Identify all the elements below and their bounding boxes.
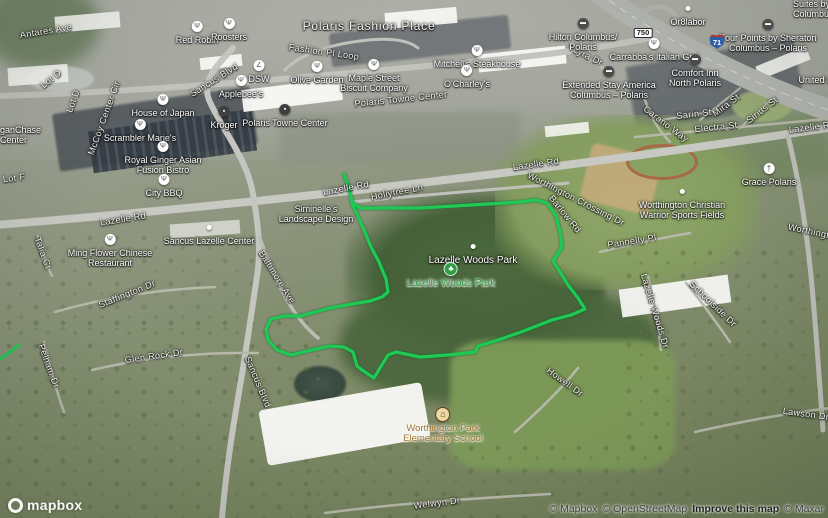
- vignette-overlay: [0, 0, 828, 518]
- map-canvas[interactable]: Polaris Fashion PlaceAntares AveLot DLot…: [0, 0, 828, 518]
- attribution-link[interactable]: © Mapbox: [549, 503, 597, 515]
- mapbox-logo[interactable]: mapbox: [8, 497, 82, 513]
- attribution-link[interactable]: © Maxar: [784, 503, 824, 515]
- attribution-bar: © Mapbox© OpenStreetMapImprove this map©…: [544, 503, 824, 515]
- attribution-link[interactable]: © OpenStreetMap: [602, 503, 687, 515]
- attribution-link[interactable]: Improve this map: [692, 503, 779, 515]
- mapbox-logo-icon: [8, 498, 23, 513]
- mapbox-wordmark: mapbox: [27, 497, 82, 513]
